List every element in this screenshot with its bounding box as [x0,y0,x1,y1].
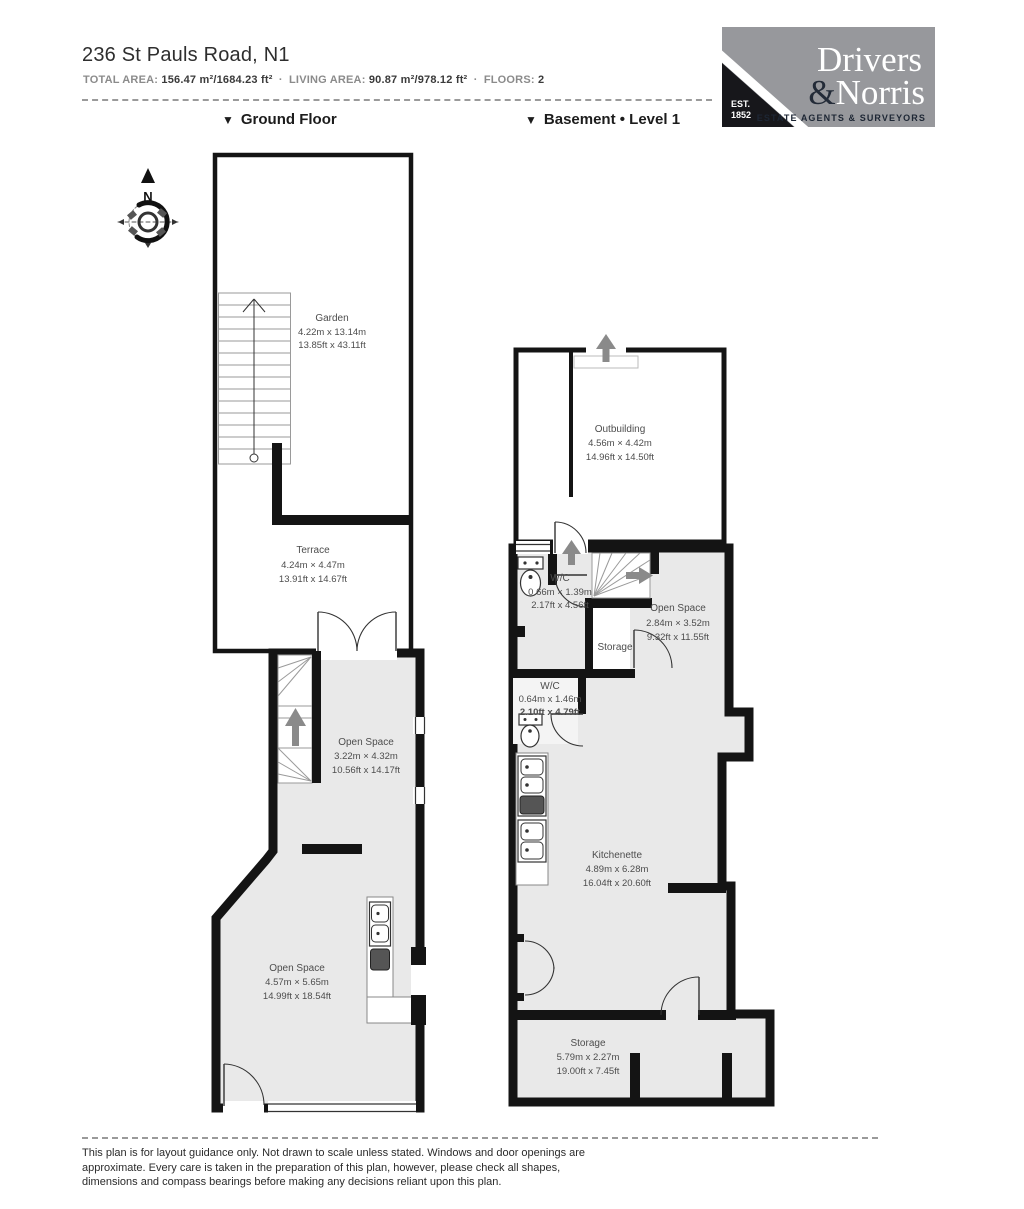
room-label-open-space-upper: Open Space 3.22m × 4.32m 10.56ft x 14.17… [332,737,400,776]
room-label-storage-mid: Storage [597,642,632,653]
svg-text:14.96ft x 14.50ft: 14.96ft x 14.50ft [586,452,654,463]
svg-text:Kitchenette: Kitchenette [592,850,642,861]
disclaimer-text: This plan is for layout guidance only. N… [82,1146,602,1190]
interior-wall [302,844,362,854]
svg-text:4.56m × 4.42m: 4.56m × 4.42m [588,438,652,449]
svg-text:14.99ft x 18.54ft: 14.99ft x 18.54ft [263,991,331,1002]
svg-text:4.22m x 13.14m: 4.22m x 13.14m [298,327,366,338]
appliance [371,949,390,970]
svg-text:Terrace: Terrace [296,545,330,556]
basement-stairs [592,553,653,598]
svg-text:5.79m x 2.27m: 5.79m x 2.27m [557,1052,620,1063]
wall-recess [411,965,426,995]
svg-text:4.24m × 4.47m: 4.24m × 4.47m [281,560,345,571]
window [413,717,427,734]
room-label-kitchenette: Kitchenette 4.89m x 6.28m 16.04ft x 20.6… [583,850,651,889]
compass-rose-icon: N [118,168,178,248]
svg-text:2.84m × 3.52m: 2.84m × 3.52m [646,618,710,629]
svg-text:0.66m × 1.39m: 0.66m × 1.39m [528,587,592,598]
kitchenette-counter [516,753,548,885]
storage-mid-room [593,608,630,669]
room-label-open-space-lower: Open Space 4.57m × 5.65m 14.99ft x 18.54… [263,963,331,1002]
svg-text:W/C: W/C [550,573,569,584]
svg-text:4.57m × 5.65m: 4.57m × 5.65m [265,977,329,988]
svg-text:13.85ft x 43.11ft: 13.85ft x 43.11ft [298,340,366,351]
svg-text:0.64m x 1.46m: 0.64m x 1.46m [519,694,582,705]
svg-text:9.32ft x 11.55ft: 9.32ft x 11.55ft [647,632,710,643]
window [268,1101,416,1115]
wall-stub [411,947,426,965]
svg-text:Outbuilding: Outbuilding [595,424,646,435]
svg-text:Storage: Storage [597,642,632,653]
svg-text:Garden: Garden [315,313,348,324]
interior-stairs [278,651,321,783]
svg-text:2.10ft x 4.79ft: 2.10ft x 4.79ft [520,707,581,718]
floor-plan-canvas: N [0,0,1024,1209]
svg-text:Storage: Storage [570,1038,605,1049]
svg-text:13.91ft x 14.67ft: 13.91ft x 14.67ft [279,574,347,585]
garden-stairs [219,293,291,464]
svg-text:Open Space: Open Space [650,603,706,614]
window [413,787,427,804]
svg-text:4.89m x 6.28m: 4.89m x 6.28m [586,864,649,875]
svg-text:Open Space: Open Space [338,737,394,748]
wall-stub [411,995,426,1025]
appliance [520,796,544,814]
basement-plan [509,334,770,1103]
svg-text:3.22m × 4.32m: 3.22m × 4.32m [334,751,398,762]
room-label-outbuilding: Outbuilding 4.56m × 4.42m 14.96ft x 14.5… [586,424,654,463]
svg-text:10.56ft x 14.17ft: 10.56ft x 14.17ft [332,765,400,776]
svg-text:W/C: W/C [540,681,559,692]
window [516,541,550,554]
svg-text:19.00ft x 7.45ft: 19.00ft x 7.45ft [557,1066,620,1077]
svg-text:Open Space: Open Space [269,963,325,974]
svg-text:2.17ft x 4.56ft: 2.17ft x 4.56ft [531,600,589,611]
room-label-open-space-basement: Open Space 2.84m × 3.52m 9.32ft x 11.55f… [646,603,710,643]
svg-text:16.04ft x 20.60ft: 16.04ft x 20.60ft [583,878,651,889]
footer-divider [82,1137,878,1139]
